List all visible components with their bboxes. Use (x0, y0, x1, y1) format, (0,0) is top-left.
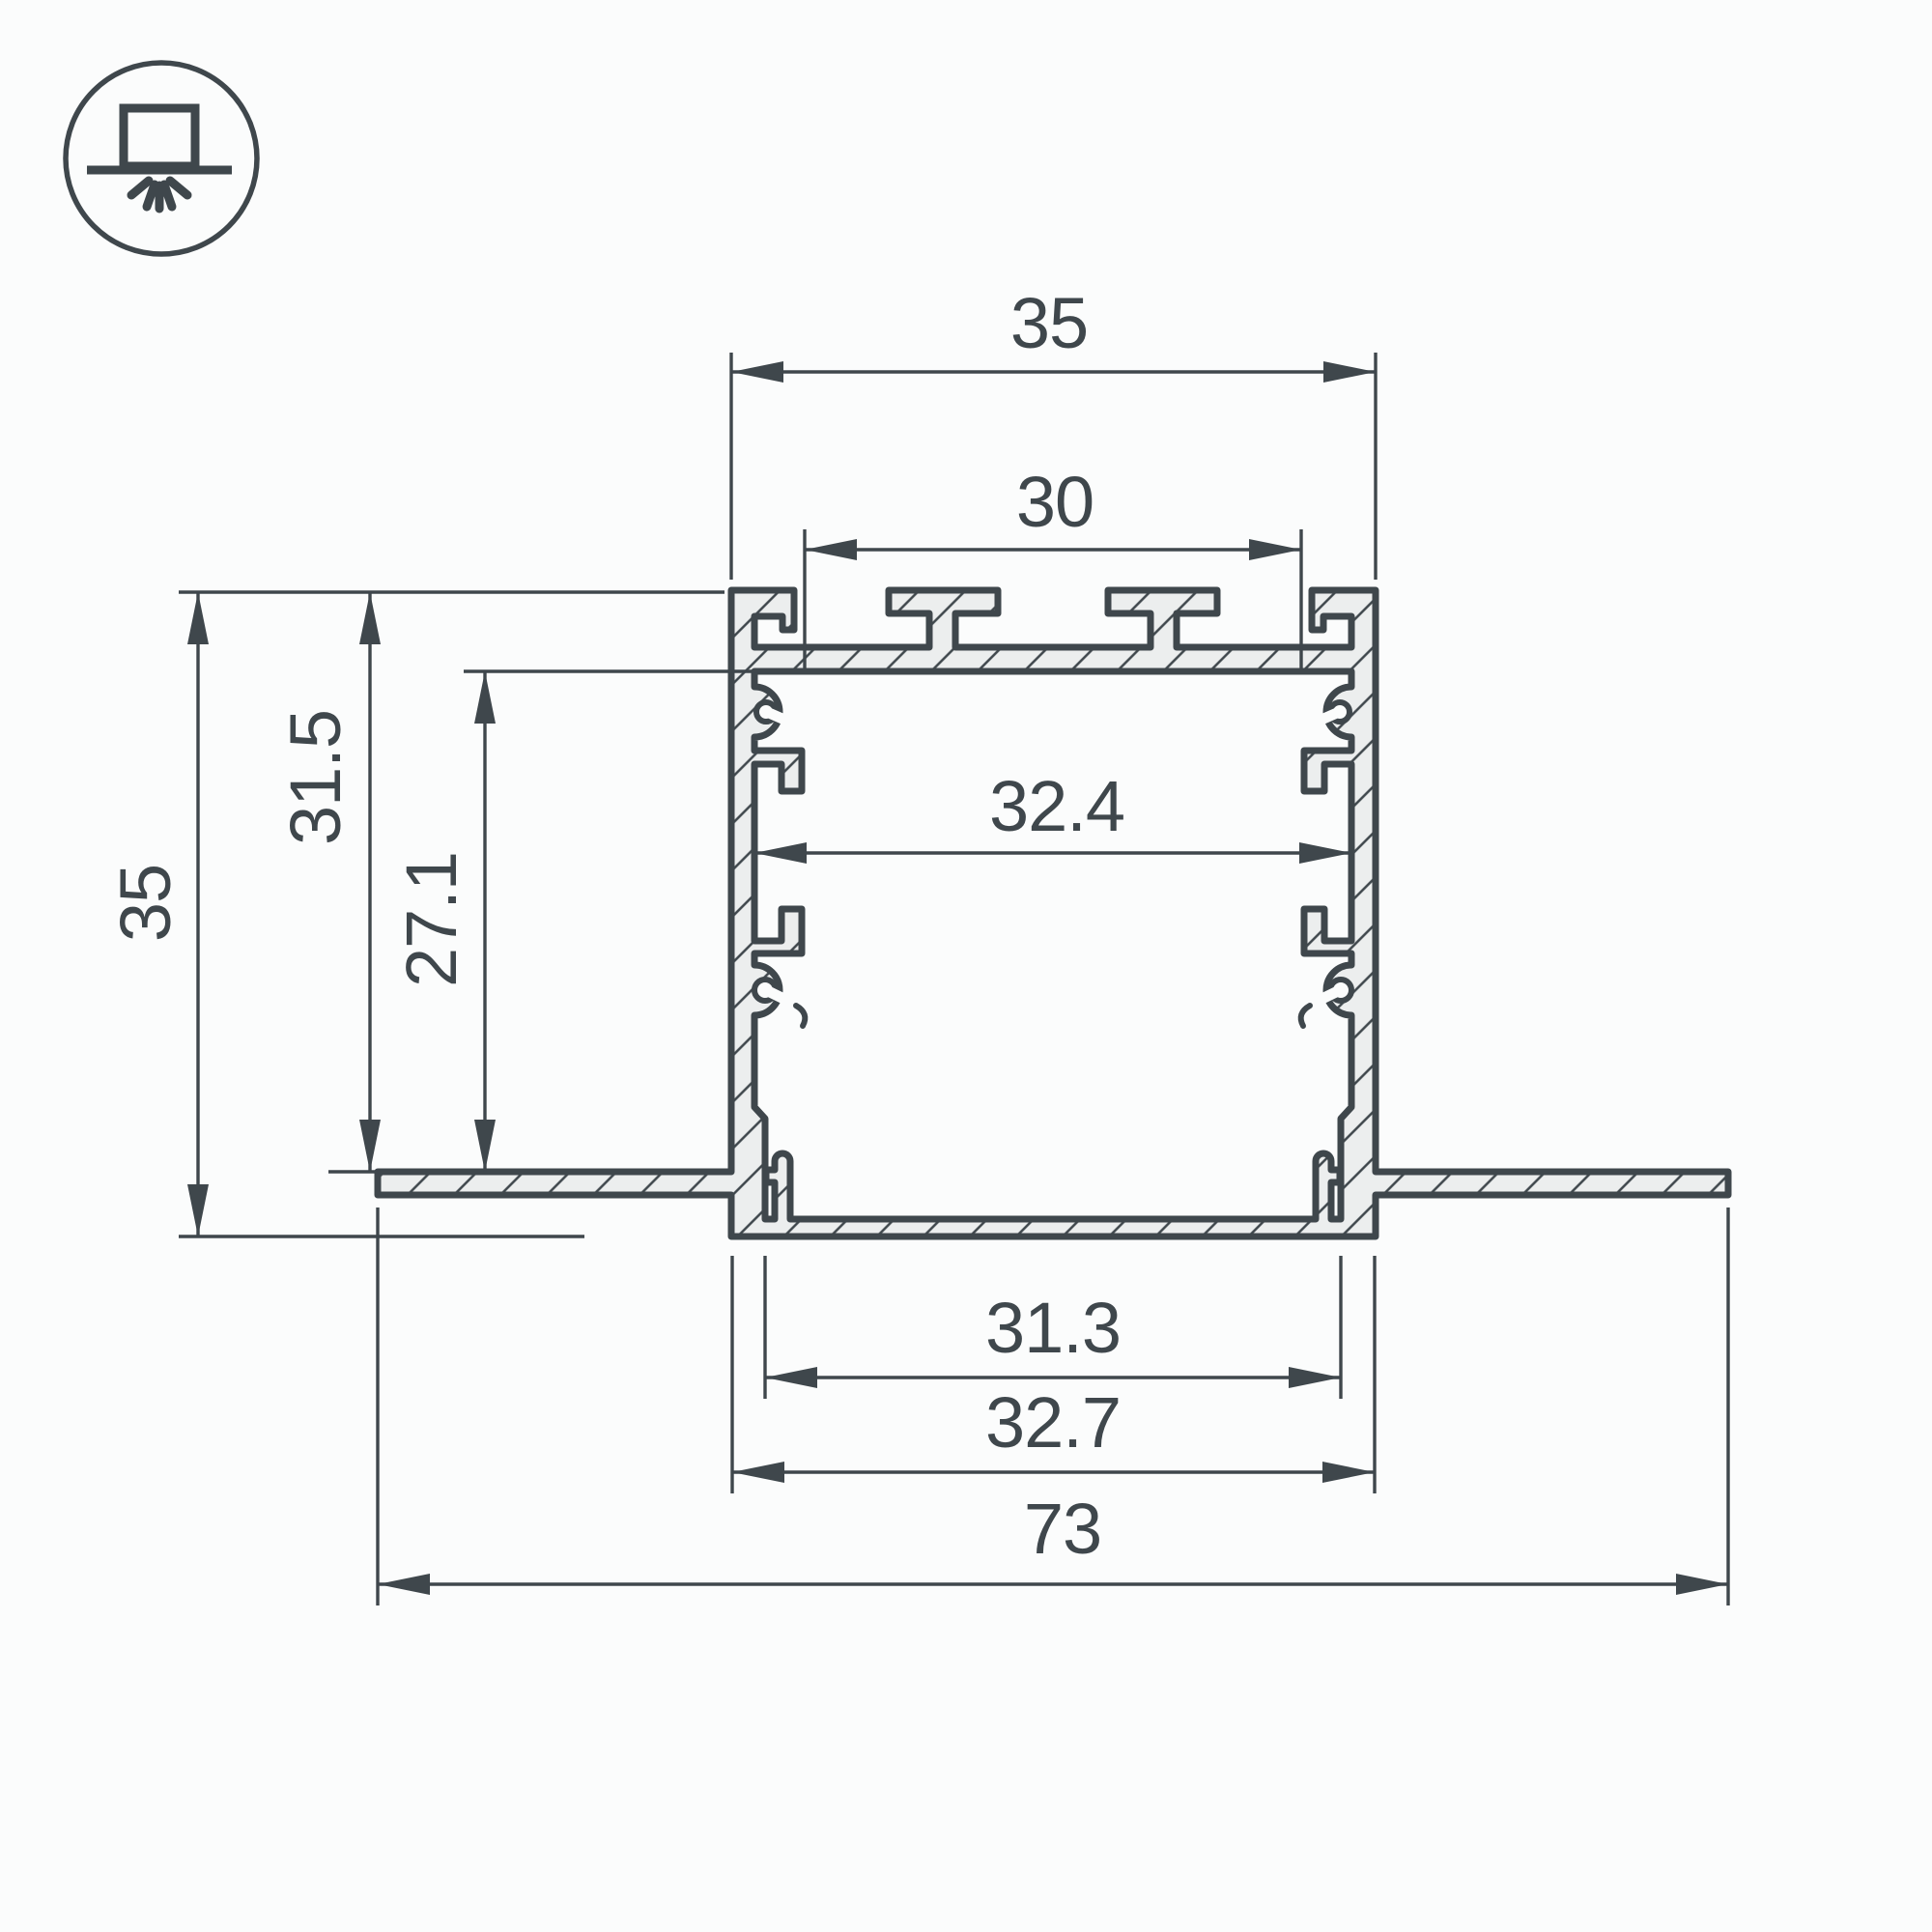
dim-height-to-flange: 31.5 (275, 592, 411, 1172)
dim-inner-width: 32.4 (754, 766, 1351, 864)
recessed-mount-icon (66, 63, 257, 254)
dim-label-overall-width: 73 (1024, 1489, 1101, 1569)
light-rays-icon (131, 181, 187, 209)
dim-bottom-inner-width: 31.3 (765, 1256, 1341, 1399)
profile-body (378, 590, 1728, 1236)
boss-tab (1301, 1006, 1310, 1026)
dim-top-opening: 30 (805, 462, 1301, 668)
icon-circle (66, 63, 257, 254)
drawing-canvas: 35 30 32.4 35 31.5 27.1 (0, 0, 1932, 1932)
dim-label-bottom-outer-width: 32.7 (985, 1382, 1121, 1463)
dim-label-height-to-flange: 31.5 (275, 710, 355, 845)
dim-label-overall-height: 35 (105, 865, 185, 942)
dim-label-top-opening: 30 (1016, 462, 1094, 542)
dim-label-top-width: 35 (1010, 283, 1088, 363)
profile-cross-section (378, 590, 1728, 1236)
dim-label-bottom-inner-width: 31.3 (985, 1288, 1121, 1368)
dim-label-channel-depth: 27.1 (391, 852, 471, 987)
boss-tab (796, 1006, 805, 1026)
dim-label-inner-width: 32.4 (989, 766, 1124, 846)
fixture-box (124, 108, 195, 166)
technical-drawing: 35 30 32.4 35 31.5 27.1 (0, 0, 1932, 1932)
